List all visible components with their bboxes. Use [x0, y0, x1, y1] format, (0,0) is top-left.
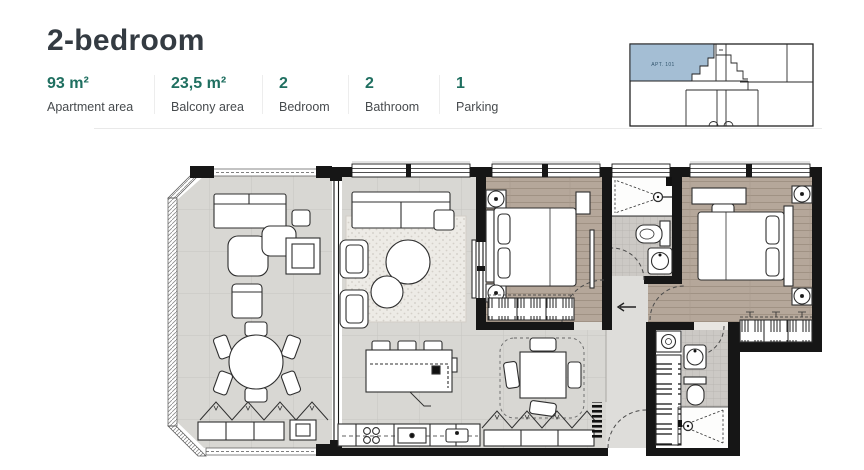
outdoor-side-table	[292, 210, 310, 226]
bathroom1-window	[612, 164, 670, 177]
armchair	[340, 240, 368, 278]
stat-bathroom-count: 2 Bathroom	[365, 75, 440, 114]
dining-zone-outline	[500, 338, 584, 418]
bathroom1-shower-floor	[612, 176, 672, 216]
bedroom2-floor	[682, 176, 812, 322]
stat-bedroom-count: 2 Bedroom	[279, 75, 349, 114]
stat-value: 2	[365, 75, 423, 93]
stat-value: 2	[279, 75, 332, 93]
outdoor-chair-2	[232, 284, 262, 318]
bedroom2-wardrobe-floor	[740, 322, 812, 342]
sideboard	[484, 430, 594, 446]
bath1-door-threshold	[612, 276, 644, 284]
dining-chair	[530, 338, 556, 351]
nightstand	[792, 186, 812, 203]
bathroom1-door-arc	[612, 248, 644, 280]
entrance-door-arc	[608, 410, 646, 448]
stat-apartment-area: 93 m² Apartment area	[47, 75, 155, 114]
entry-arrow-icon	[618, 303, 636, 311]
stat-value: 23,5 m²	[171, 75, 246, 93]
bedroom-1	[486, 190, 594, 320]
stat-value: 1	[456, 75, 500, 93]
bedroom1-floor	[486, 176, 602, 322]
bedroom2-door-arc	[650, 286, 684, 320]
bedroom1-door-arc	[562, 280, 604, 322]
dining-table	[520, 352, 566, 398]
media-console	[472, 240, 476, 298]
wardrobe-1	[488, 295, 574, 320]
kitchen-sink	[446, 429, 468, 442]
bathroom2-shower-floor	[678, 407, 728, 446]
sink-1	[648, 248, 672, 274]
wall-shelf	[576, 192, 590, 214]
bathroom2-door-arc	[694, 326, 724, 356]
coffee-table-2	[371, 276, 403, 308]
shower-spray	[615, 180, 653, 213]
sofa-side-table	[434, 210, 454, 230]
walls	[190, 166, 822, 456]
stat-label: Balcony area	[171, 100, 246, 114]
outdoor-table	[262, 226, 296, 256]
kitchen-counter	[338, 424, 480, 446]
kitchen-island	[366, 341, 457, 406]
dining-chair	[529, 400, 557, 416]
rug	[346, 216, 466, 322]
toilet-2	[684, 377, 706, 405]
wardrobe-2	[740, 312, 812, 342]
bedroom2-alcove-floor	[648, 284, 682, 322]
lamp	[794, 288, 810, 304]
balcony-envelope	[168, 168, 330, 456]
bath2-door-threshold	[694, 322, 728, 330]
living-window	[352, 162, 470, 177]
shower-spray	[692, 410, 723, 443]
bathroom2-utility-floor	[656, 330, 682, 448]
hall-floor	[606, 284, 648, 448]
balcony-small-table	[290, 420, 316, 440]
balcony	[198, 194, 328, 440]
bathroom2-tile-floor	[682, 330, 728, 407]
balcony-bench	[198, 422, 284, 440]
balcony-floor	[177, 176, 332, 448]
stats-row: 93 m² Apartment area 23,5 m² Balcony are…	[47, 75, 864, 114]
bed1-door-threshold	[574, 322, 602, 330]
bedroom1-window	[492, 162, 600, 177]
bathroom-2	[656, 331, 728, 446]
shower-head-icon	[654, 193, 673, 202]
tv-console	[590, 230, 594, 288]
dining-area	[482, 338, 602, 446]
outdoor-sofa	[214, 194, 286, 228]
armchair-2	[340, 290, 368, 328]
nightstand	[792, 288, 812, 305]
hallway	[618, 303, 636, 311]
washing-machine	[656, 331, 681, 352]
utility-shelves	[656, 355, 681, 445]
lamp	[488, 191, 504, 207]
stat-label: Bathroom	[365, 100, 423, 114]
bed-1	[486, 208, 576, 286]
stat-value: 93 m²	[47, 75, 138, 93]
square-coffee-table	[286, 238, 320, 274]
sink-2	[684, 345, 706, 369]
floor-plan	[168, 162, 822, 456]
nightstand	[486, 284, 506, 302]
coffee-table	[386, 240, 430, 284]
glass-partition	[334, 177, 483, 448]
header: 2-bedroom 93 m² Apartment area 23,5 m² B…	[0, 0, 864, 129]
radiator	[592, 402, 602, 440]
page-title: 2-bedroom	[47, 24, 864, 58]
lamp	[794, 186, 810, 202]
shower-2	[678, 407, 728, 446]
doors	[562, 248, 724, 448]
outdoor-chair	[228, 236, 268, 276]
windows	[352, 162, 810, 177]
oven	[398, 428, 426, 443]
stat-label: Parking	[456, 100, 500, 114]
lamp	[488, 285, 504, 301]
dining-chair	[503, 361, 519, 389]
bed-2	[698, 206, 793, 286]
floors	[177, 176, 812, 448]
sofa	[352, 192, 450, 228]
listing-page: 2-bedroom 93 m² Apartment area 23,5 m² B…	[0, 0, 864, 470]
bathroom-1	[612, 177, 672, 274]
stat-label: Bedroom	[279, 100, 332, 114]
dining-chair	[568, 362, 581, 388]
sideboard-zigzag	[482, 411, 596, 428]
living-floor	[342, 176, 606, 448]
stat-parking-count: 1 Parking	[456, 75, 516, 114]
cooktop	[364, 428, 380, 444]
balcony-chairs	[213, 322, 302, 402]
living-room	[340, 192, 476, 328]
stat-label: Apartment area	[47, 100, 138, 114]
bedroom-2	[692, 186, 812, 342]
toilet-1	[636, 221, 670, 246]
nightstand	[486, 190, 506, 208]
kitchen	[338, 341, 480, 446]
dresser	[692, 188, 746, 204]
desk-chair	[712, 204, 734, 216]
bathroom1-tile-floor	[612, 216, 672, 276]
round-dining-table	[213, 322, 302, 402]
header-divider	[94, 128, 822, 129]
planter-zigzag	[200, 402, 328, 420]
bedroom2-window	[690, 162, 810, 177]
shower-head-icon	[678, 422, 693, 431]
stat-balcony-area: 23,5 m² Balcony area	[171, 75, 263, 114]
